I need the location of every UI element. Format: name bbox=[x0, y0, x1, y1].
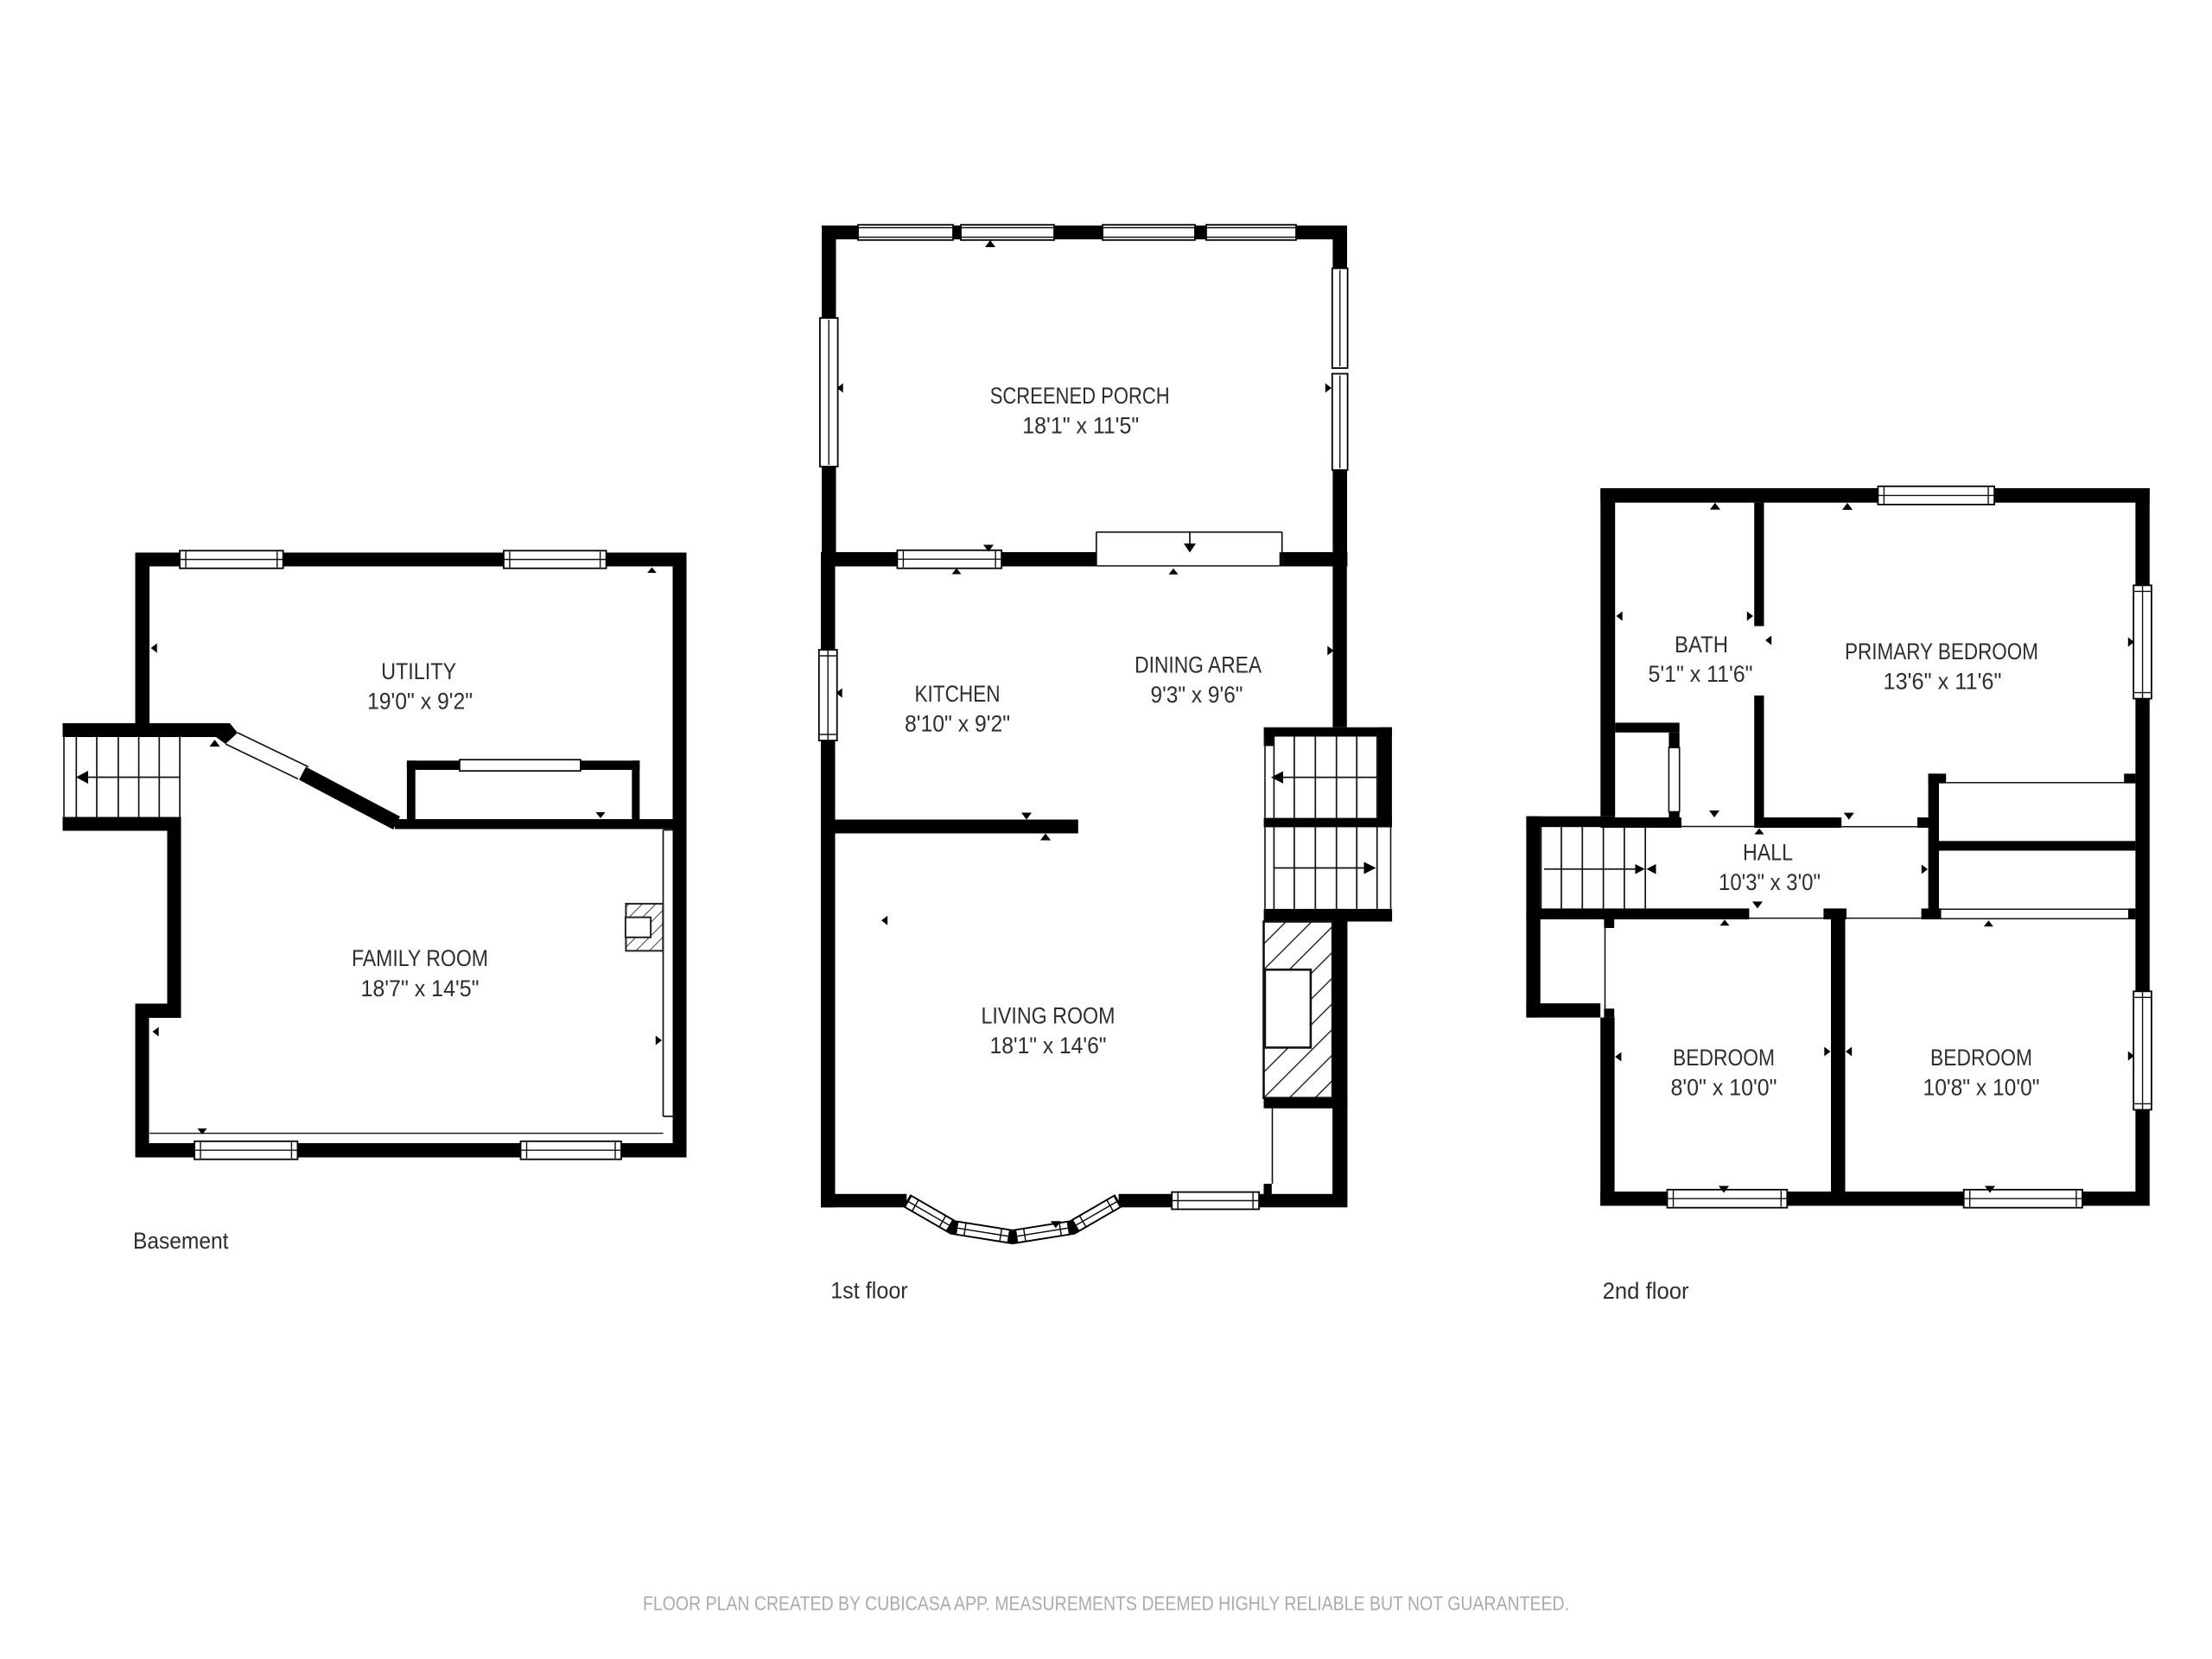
svg-text:19'0" x 9'2": 19'0" x 9'2" bbox=[367, 689, 473, 715]
svg-text:10'8" x 10'0": 10'8" x 10'0" bbox=[1923, 1074, 2040, 1100]
svg-text:BEDROOM: BEDROOM bbox=[1930, 1045, 2032, 1071]
svg-text:18'1" x 11'5": 18'1" x 11'5" bbox=[1022, 413, 1139, 439]
svg-text:9'3" x 9'6": 9'3" x 9'6" bbox=[1151, 682, 1243, 708]
svg-text:18'1" x 14'6": 18'1" x 14'6" bbox=[990, 1033, 1107, 1058]
svg-text:8'10" x 9'2": 8'10" x 9'2" bbox=[905, 710, 1010, 736]
svg-text:UTILITY: UTILITY bbox=[381, 658, 456, 684]
svg-text:HALL: HALL bbox=[1743, 840, 1793, 866]
svg-text:Basement: Basement bbox=[133, 1228, 229, 1254]
svg-text:1st floor: 1st floor bbox=[830, 1277, 908, 1303]
svg-text:5'1" x 11'6": 5'1" x 11'6" bbox=[1649, 661, 1753, 687]
svg-text:BATH: BATH bbox=[1675, 632, 1728, 658]
svg-text:18'7" x 14'5": 18'7" x 14'5" bbox=[361, 976, 480, 1001]
svg-text:2nd floor: 2nd floor bbox=[1603, 1278, 1689, 1304]
svg-text:BEDROOM: BEDROOM bbox=[1673, 1045, 1775, 1071]
svg-text:LIVING ROOM: LIVING ROOM bbox=[982, 1003, 1116, 1029]
svg-text:13'6" x 11'6": 13'6" x 11'6" bbox=[1884, 668, 2002, 694]
svg-text:FAMILY ROOM: FAMILY ROOM bbox=[352, 945, 488, 971]
svg-text:SCREENED PORCH: SCREENED PORCH bbox=[990, 383, 1170, 409]
svg-text:DINING AREA: DINING AREA bbox=[1135, 652, 1262, 678]
svg-text:PRIMARY BEDROOM: PRIMARY BEDROOM bbox=[1845, 639, 2038, 664]
svg-text:10'3" x 3'0": 10'3" x 3'0" bbox=[1719, 869, 1821, 895]
svg-text:KITCHEN: KITCHEN bbox=[915, 681, 1001, 707]
svg-text:8'0" x 10'0": 8'0" x 10'0" bbox=[1671, 1074, 1777, 1100]
svg-text:FLOOR PLAN CREATED BY CUBICASA: FLOOR PLAN CREATED BY CUBICASA APP. MEAS… bbox=[643, 1592, 1569, 1615]
